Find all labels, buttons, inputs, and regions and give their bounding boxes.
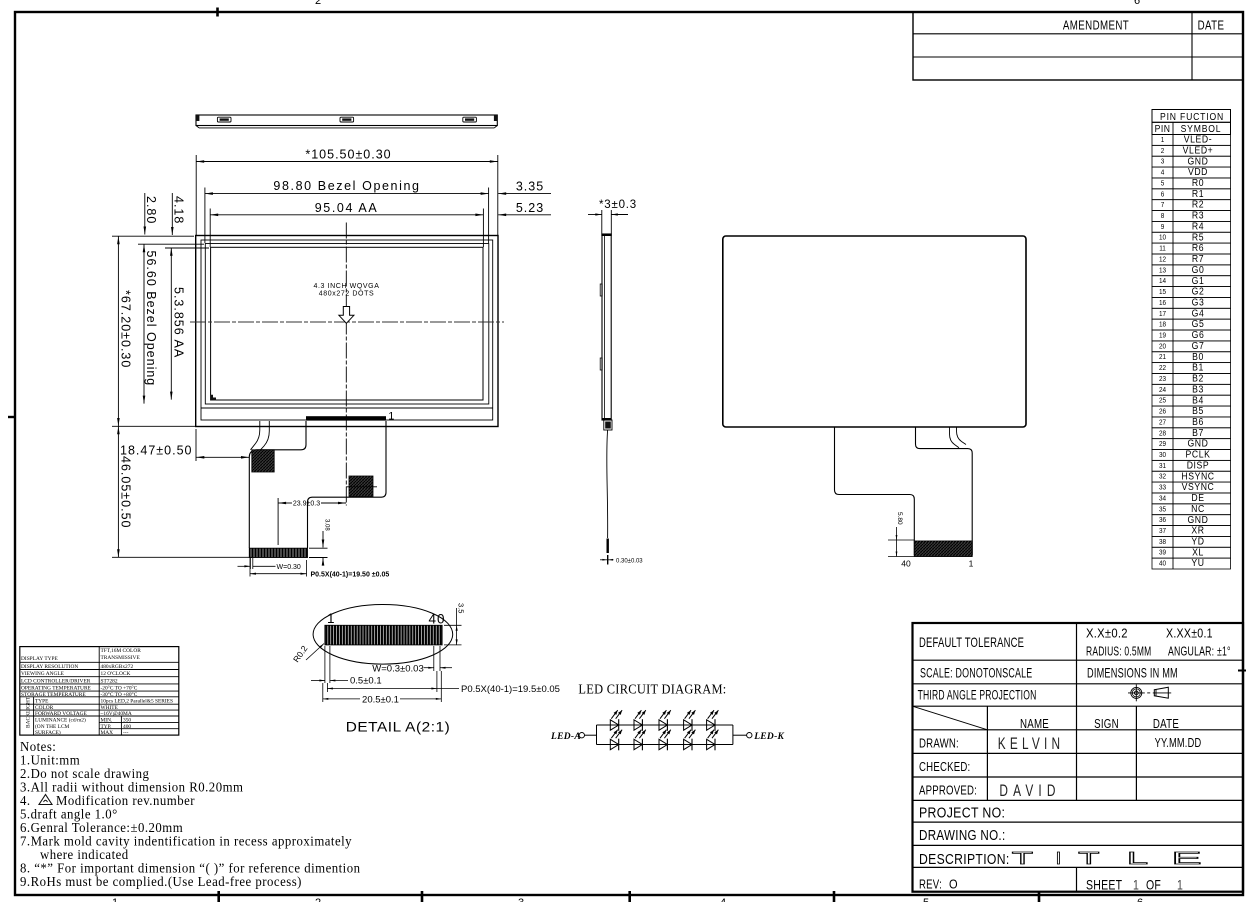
svg-text:MIN.: MIN. (101, 718, 113, 724)
svg-text:P0.5X(40-1)=19.50 ±0.05: P0.5X(40-1)=19.50 ±0.05 (311, 571, 390, 578)
svg-text:*3±0.3: *3±0.3 (599, 199, 637, 211)
svg-text:X.XX±0.1: X.XX±0.1 (1166, 627, 1213, 641)
svg-text:(ON THE LCM: (ON THE LCM (35, 723, 70, 730)
svg-text:O: O (949, 877, 958, 892)
svg-text:FORWARD VOLTAGE: FORWARD VOLTAGE (35, 711, 88, 717)
svg-text:11: 11 (1159, 245, 1166, 253)
svg-text:REV:: REV: (919, 878, 942, 892)
svg-text:DATE: DATE (1153, 718, 1179, 731)
svg-text:34: 34 (1159, 495, 1166, 503)
svg-text:480xRGBx272: 480xRGBx272 (101, 664, 134, 670)
svg-text:PIN FUCTION: PIN FUCTION (1160, 111, 1224, 123)
svg-text:W=0.3±0.03: W=0.3±0.03 (372, 664, 423, 675)
svg-text:2: 2 (315, 897, 321, 902)
svg-text:T: T (1078, 848, 1100, 868)
svg-text:LUMINANCE (cd/m2): LUMINANCE (cd/m2) (35, 717, 86, 724)
svg-text:SIGN: SIGN (1094, 718, 1119, 731)
svg-text:DEFAULT TOLERANCE: DEFAULT TOLERANCE (919, 635, 1024, 650)
svg-text:*67.20±0.30: *67.20±0.30 (118, 290, 132, 368)
svg-text:CHECKED:: CHECKED: (919, 761, 970, 775)
svg-text:DISPLAY RESOLUTION: DISPLAY RESOLUTION (21, 664, 78, 670)
svg-text:20: 20 (1159, 343, 1166, 351)
svg-text:VIEWING ANGLE: VIEWING ANGLE (21, 671, 65, 677)
svg-text:TYPE: TYPE (35, 699, 49, 705)
svg-text:22: 22 (1159, 365, 1166, 373)
svg-text:7: 7 (1161, 202, 1165, 210)
svg-text:25: 25 (1159, 397, 1166, 405)
svg-text:2: 2 (1161, 147, 1165, 155)
svg-text:YY.MM.DD: YY.MM.DD (1155, 737, 1202, 751)
svg-text:APPROVED:: APPROVED: (919, 784, 977, 798)
svg-text:6: 6 (1161, 191, 1165, 199)
svg-text:10pcs LED,2 Parallel&5 SERIES: 10pcs LED,2 Parallel&5 SERIES (101, 699, 173, 705)
svg-text:12 O'CLOCK: 12 O'CLOCK (101, 671, 131, 677)
svg-text:28: 28 (1159, 430, 1166, 438)
svg-text:LED-A: LED-A (550, 732, 581, 742)
svg-text:2.80: 2.80 (144, 196, 158, 224)
svg-text:26: 26 (1159, 408, 1166, 416)
svg-text:DETAIL A(2:1): DETAIL A(2:1) (346, 720, 451, 735)
svg-text:16: 16 (1159, 300, 1166, 308)
svg-text:3: 3 (518, 897, 524, 902)
svg-text:T: T (1012, 848, 1034, 868)
svg-text:DRAWN:: DRAWN: (919, 737, 959, 751)
svg-text:40: 40 (901, 559, 911, 569)
svg-text:20.5±0.1: 20.5±0.1 (362, 694, 399, 705)
svg-text:8: 8 (1161, 213, 1165, 221)
svg-text:SURFACE): SURFACE) (35, 729, 61, 736)
svg-text:-20°C TO +70°C: -20°C TO +70°C (101, 685, 138, 692)
svg-text:OPERATING TEMPERATURE: OPERATING TEMPERATURE (21, 686, 92, 692)
svg-text:BACKLIGHT: BACKLIGHT (26, 696, 32, 728)
svg-text:6: 6 (1137, 897, 1143, 902)
svg-text:LED CIRCUIT DIAGRAM:: LED CIRCUIT DIAGRAM: (578, 681, 726, 697)
svg-text:PROJECT NO:: PROJECT NO: (919, 804, 1005, 820)
svg-text:I: I (1055, 849, 1061, 868)
svg-text:ANGULAR: ±1°: ANGULAR: ±1° (1168, 645, 1231, 659)
svg-text:21: 21 (1159, 354, 1166, 362)
svg-text:35: 35 (1159, 506, 1166, 514)
svg-text:---: --- (123, 730, 129, 736)
svg-text:LCD CONTROLLER/DRIVER: LCD CONTROLLER/DRIVER (21, 678, 91, 684)
svg-text:95.04 AA: 95.04 AA (315, 201, 379, 215)
svg-text:TFT,16M COLOR: TFT,16M COLOR (101, 648, 142, 654)
svg-text:SHEET: SHEET (1086, 877, 1123, 893)
svg-text:1: 1 (1133, 877, 1139, 893)
svg-text:1: 1 (1161, 137, 1165, 145)
svg-text:29: 29 (1159, 441, 1166, 449)
svg-text:56.60 Bezel Opening: 56.60 Bezel Opening (144, 251, 158, 387)
svg-text:DIMENSIONS IN MM: DIMENSIONS IN MM (1087, 667, 1178, 681)
svg-text:1: 1 (112, 897, 118, 902)
svg-text:DISPLAY TYPE: DISPLAY TYPE (21, 656, 59, 662)
svg-text:NAME: NAME (1020, 718, 1049, 731)
svg-text:23.9±0.3: 23.9±0.3 (293, 501, 320, 508)
svg-text:YU: YU (1191, 558, 1204, 570)
svg-text:4.18: 4.18 (172, 196, 186, 224)
svg-text:40: 40 (428, 612, 445, 627)
svg-text:0.5±0.1: 0.5±0.1 (350, 676, 382, 687)
svg-text:KELVIN: KELVIN (998, 735, 1064, 753)
svg-text:1: 1 (388, 411, 394, 423)
svg-text:350: 350 (123, 718, 131, 724)
svg-text:W=0.30: W=0.30 (277, 564, 301, 571)
svg-text:38: 38 (1159, 538, 1166, 546)
svg-text:10: 10 (1159, 234, 1166, 242)
svg-text:31: 31 (1159, 462, 1166, 470)
svg-text:480x272 DOTS: 480x272 DOTS (319, 291, 374, 298)
svg-text:18: 18 (1159, 321, 1166, 329)
svg-text:14: 14 (1159, 278, 1166, 286)
svg-text:L: L (1127, 849, 1148, 868)
svg-text:-30°C TO +80°C: -30°C TO +80°C (101, 691, 138, 698)
svg-text:15: 15 (1159, 289, 1166, 297)
svg-text:4: 4 (720, 897, 726, 902)
svg-text:SCALE: DONOTONSCALE: SCALE: DONOTONSCALE (920, 667, 1032, 681)
svg-text:E: E (1171, 849, 1201, 868)
svg-text:5.3.856 AA: 5.3.856 AA (171, 287, 185, 358)
svg-text:LED-K: LED-K (753, 732, 784, 742)
svg-text:33: 33 (1159, 484, 1166, 492)
svg-text:13: 13 (1159, 267, 1166, 275)
svg-text:X.X±0.2: X.X±0.2 (1086, 626, 1128, 641)
svg-text:AMENDMENT: AMENDMENT (1063, 19, 1129, 32)
svg-text:2: 2 (315, 0, 321, 7)
svg-text:9: 9 (1161, 223, 1165, 231)
svg-text:DESCRIPTION:: DESCRIPTION: (919, 851, 1010, 867)
svg-text:1: 1 (327, 611, 335, 626)
svg-text:24: 24 (1159, 386, 1166, 394)
svg-text:MAX: MAX (101, 730, 114, 736)
svg-text:3: 3 (1161, 158, 1165, 166)
svg-text:*105.50±0.30: *105.50±0.30 (305, 148, 391, 162)
svg-text:4: 4 (1161, 169, 1165, 177)
svg-text:6: 6 (1134, 0, 1140, 7)
svg-text:37: 37 (1159, 528, 1166, 536)
svg-text:1: 1 (1177, 877, 1183, 893)
svg-text:17: 17 (1159, 310, 1166, 318)
svg-text:98.80 Bezel Opening: 98.80 Bezel Opening (273, 179, 420, 193)
svg-text:46.05±0.50: 46.05±0.50 (118, 456, 132, 528)
svg-text:32: 32 (1159, 473, 1166, 481)
svg-text:THIRD ANGLE PROJECTION: THIRD ANGLE PROJECTION (918, 689, 1037, 703)
svg-text:9.RoHs must be complied.(Use L: 9.RoHs must be complied.(Use Lead-free p… (20, 874, 302, 889)
svg-text:19: 19 (1159, 332, 1166, 340)
svg-text:0.30±0.03: 0.30±0.03 (616, 558, 643, 564)
svg-text:RADIUS: 0.5MM: RADIUS: 0.5MM (1086, 645, 1151, 659)
svg-text:39: 39 (1159, 549, 1166, 557)
svg-text:1: 1 (969, 559, 974, 569)
svg-text:5: 5 (1161, 180, 1165, 188)
svg-text:27: 27 (1159, 419, 1166, 427)
svg-text:DATE: DATE (1198, 19, 1225, 32)
svg-text:4.3 INCH WQVGA: 4.3 INCH WQVGA (314, 283, 380, 290)
svg-text:5.23: 5.23 (516, 201, 544, 215)
svg-text:3.5: 3.5 (457, 603, 466, 613)
svg-text:36: 36 (1159, 517, 1166, 525)
svg-text:P0.5X(40-1)=19.5±0.05: P0.5X(40-1)=19.5±0.05 (461, 684, 560, 695)
svg-text:30: 30 (1159, 452, 1166, 460)
svg-text:23: 23 (1159, 376, 1166, 384)
svg-text:12: 12 (1159, 256, 1166, 264)
svg-text:5: 5 (923, 897, 929, 902)
svg-text:40: 40 (1159, 560, 1166, 568)
svg-text:DAVID: DAVID (999, 782, 1060, 800)
svg-text:~16V@40MA: ~16V@40MA (101, 711, 132, 717)
svg-text:PIN: PIN (1155, 123, 1171, 135)
svg-text:3.08: 3.08 (324, 519, 330, 531)
svg-text:ST7282: ST7282 (101, 678, 118, 684)
svg-text:DRAWING NO.:: DRAWING NO.: (919, 827, 1006, 844)
svg-text:5.80: 5.80 (896, 512, 903, 525)
svg-text:OF: OF (1146, 877, 1161, 893)
svg-text:3.35: 3.35 (516, 179, 544, 193)
svg-text:TRANSMISSIVE: TRANSMISSIVE (101, 655, 141, 661)
